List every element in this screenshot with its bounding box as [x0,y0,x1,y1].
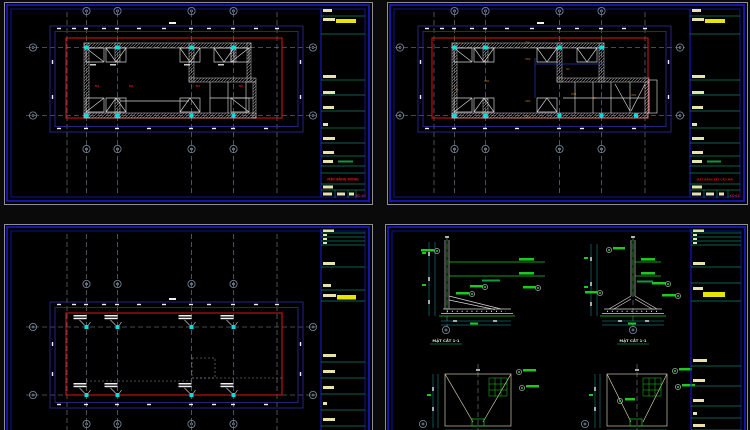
beam-label: DD2 [526,100,532,103]
footing-label: M1 [95,85,99,88]
sheet-number: KC-01 [356,194,366,198]
cad-canvas: M1 M2 M1 M2 MẶT BẰNG MÓNG KC-01 [0,0,750,430]
section-title: MẶT CẮT 1-1 [432,338,459,343]
footing-label: M1 [196,85,200,88]
beam-label: D3 [592,97,596,100]
sheet-foundation-details[interactable]: MẶT CẮT 1-1 MẶT CẮT 1-1 [386,225,748,430]
sheet-foundation-plan[interactable]: M1 M2 M1 M2 MẶT BẰNG MÓNG KC-01 [5,3,373,205]
beam-label: DD1 [632,94,638,97]
highlighted-field [336,19,356,23]
highlighted-field [703,292,725,297]
drawing-surface: M1 M2 M1 M2 MẶT BẰNG MÓNG KC-01 [0,0,750,430]
footing-label: M2 [239,85,243,88]
beam-label: DD1 [526,42,532,45]
section-title: MẶT CẮT 1-1 [619,338,646,343]
sheet-column-layout-plan[interactable] [5,225,373,430]
beam-label: DD1 [572,93,578,96]
sheet-title: MẶT BẰNG MÓNG [327,177,359,182]
sheet-roof-framing-plan[interactable]: DD1 DD2 DD1 D1 DD2 D2 DD1 D3 DD2 DD1 MẶT… [388,3,748,205]
beam-label: DD1 [485,80,491,83]
beam-label: D2 [566,68,570,71]
beam-label: DD2 [526,116,532,119]
sheet-number: KC-02 [730,194,740,198]
footing-label: M2 [129,85,133,88]
beam-label: DD2 [526,58,532,61]
highlighted-field [337,295,356,300]
highlighted-field [705,19,725,23]
beam-label: D1 [455,89,459,92]
